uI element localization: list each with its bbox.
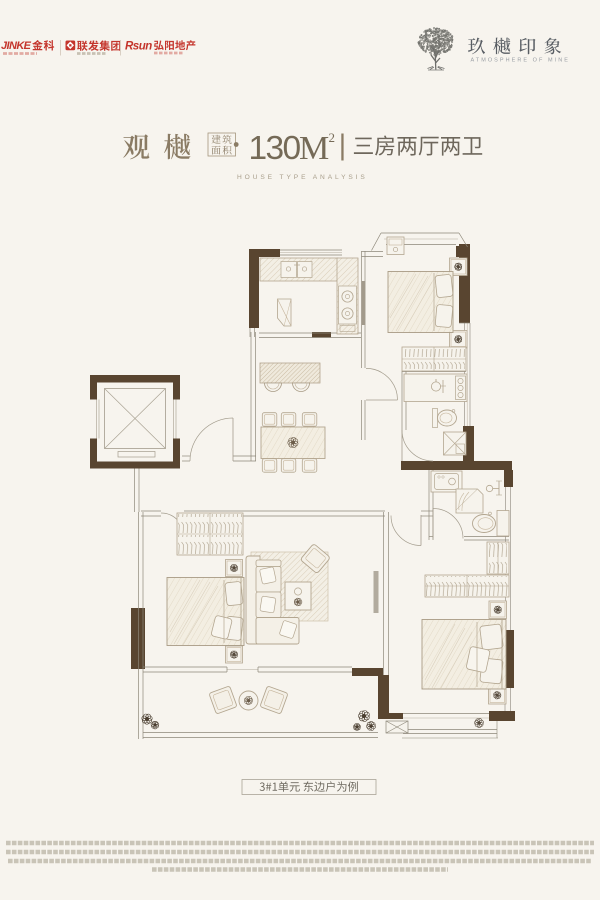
svg-text:JINKE: JINKE [1, 40, 32, 52]
svg-text:HOUSE TYPE ANALYSIS: HOUSE TYPE ANALYSIS [237, 174, 368, 181]
svg-text:M: M [299, 130, 329, 167]
svg-text:2: 2 [329, 130, 336, 145]
svg-text:130: 130 [249, 130, 301, 167]
svg-text:Rsun: Rsun [125, 41, 152, 53]
svg-text:ATMOSPHERE OF MINE: ATMOSPHERE OF MINE [471, 58, 570, 64]
